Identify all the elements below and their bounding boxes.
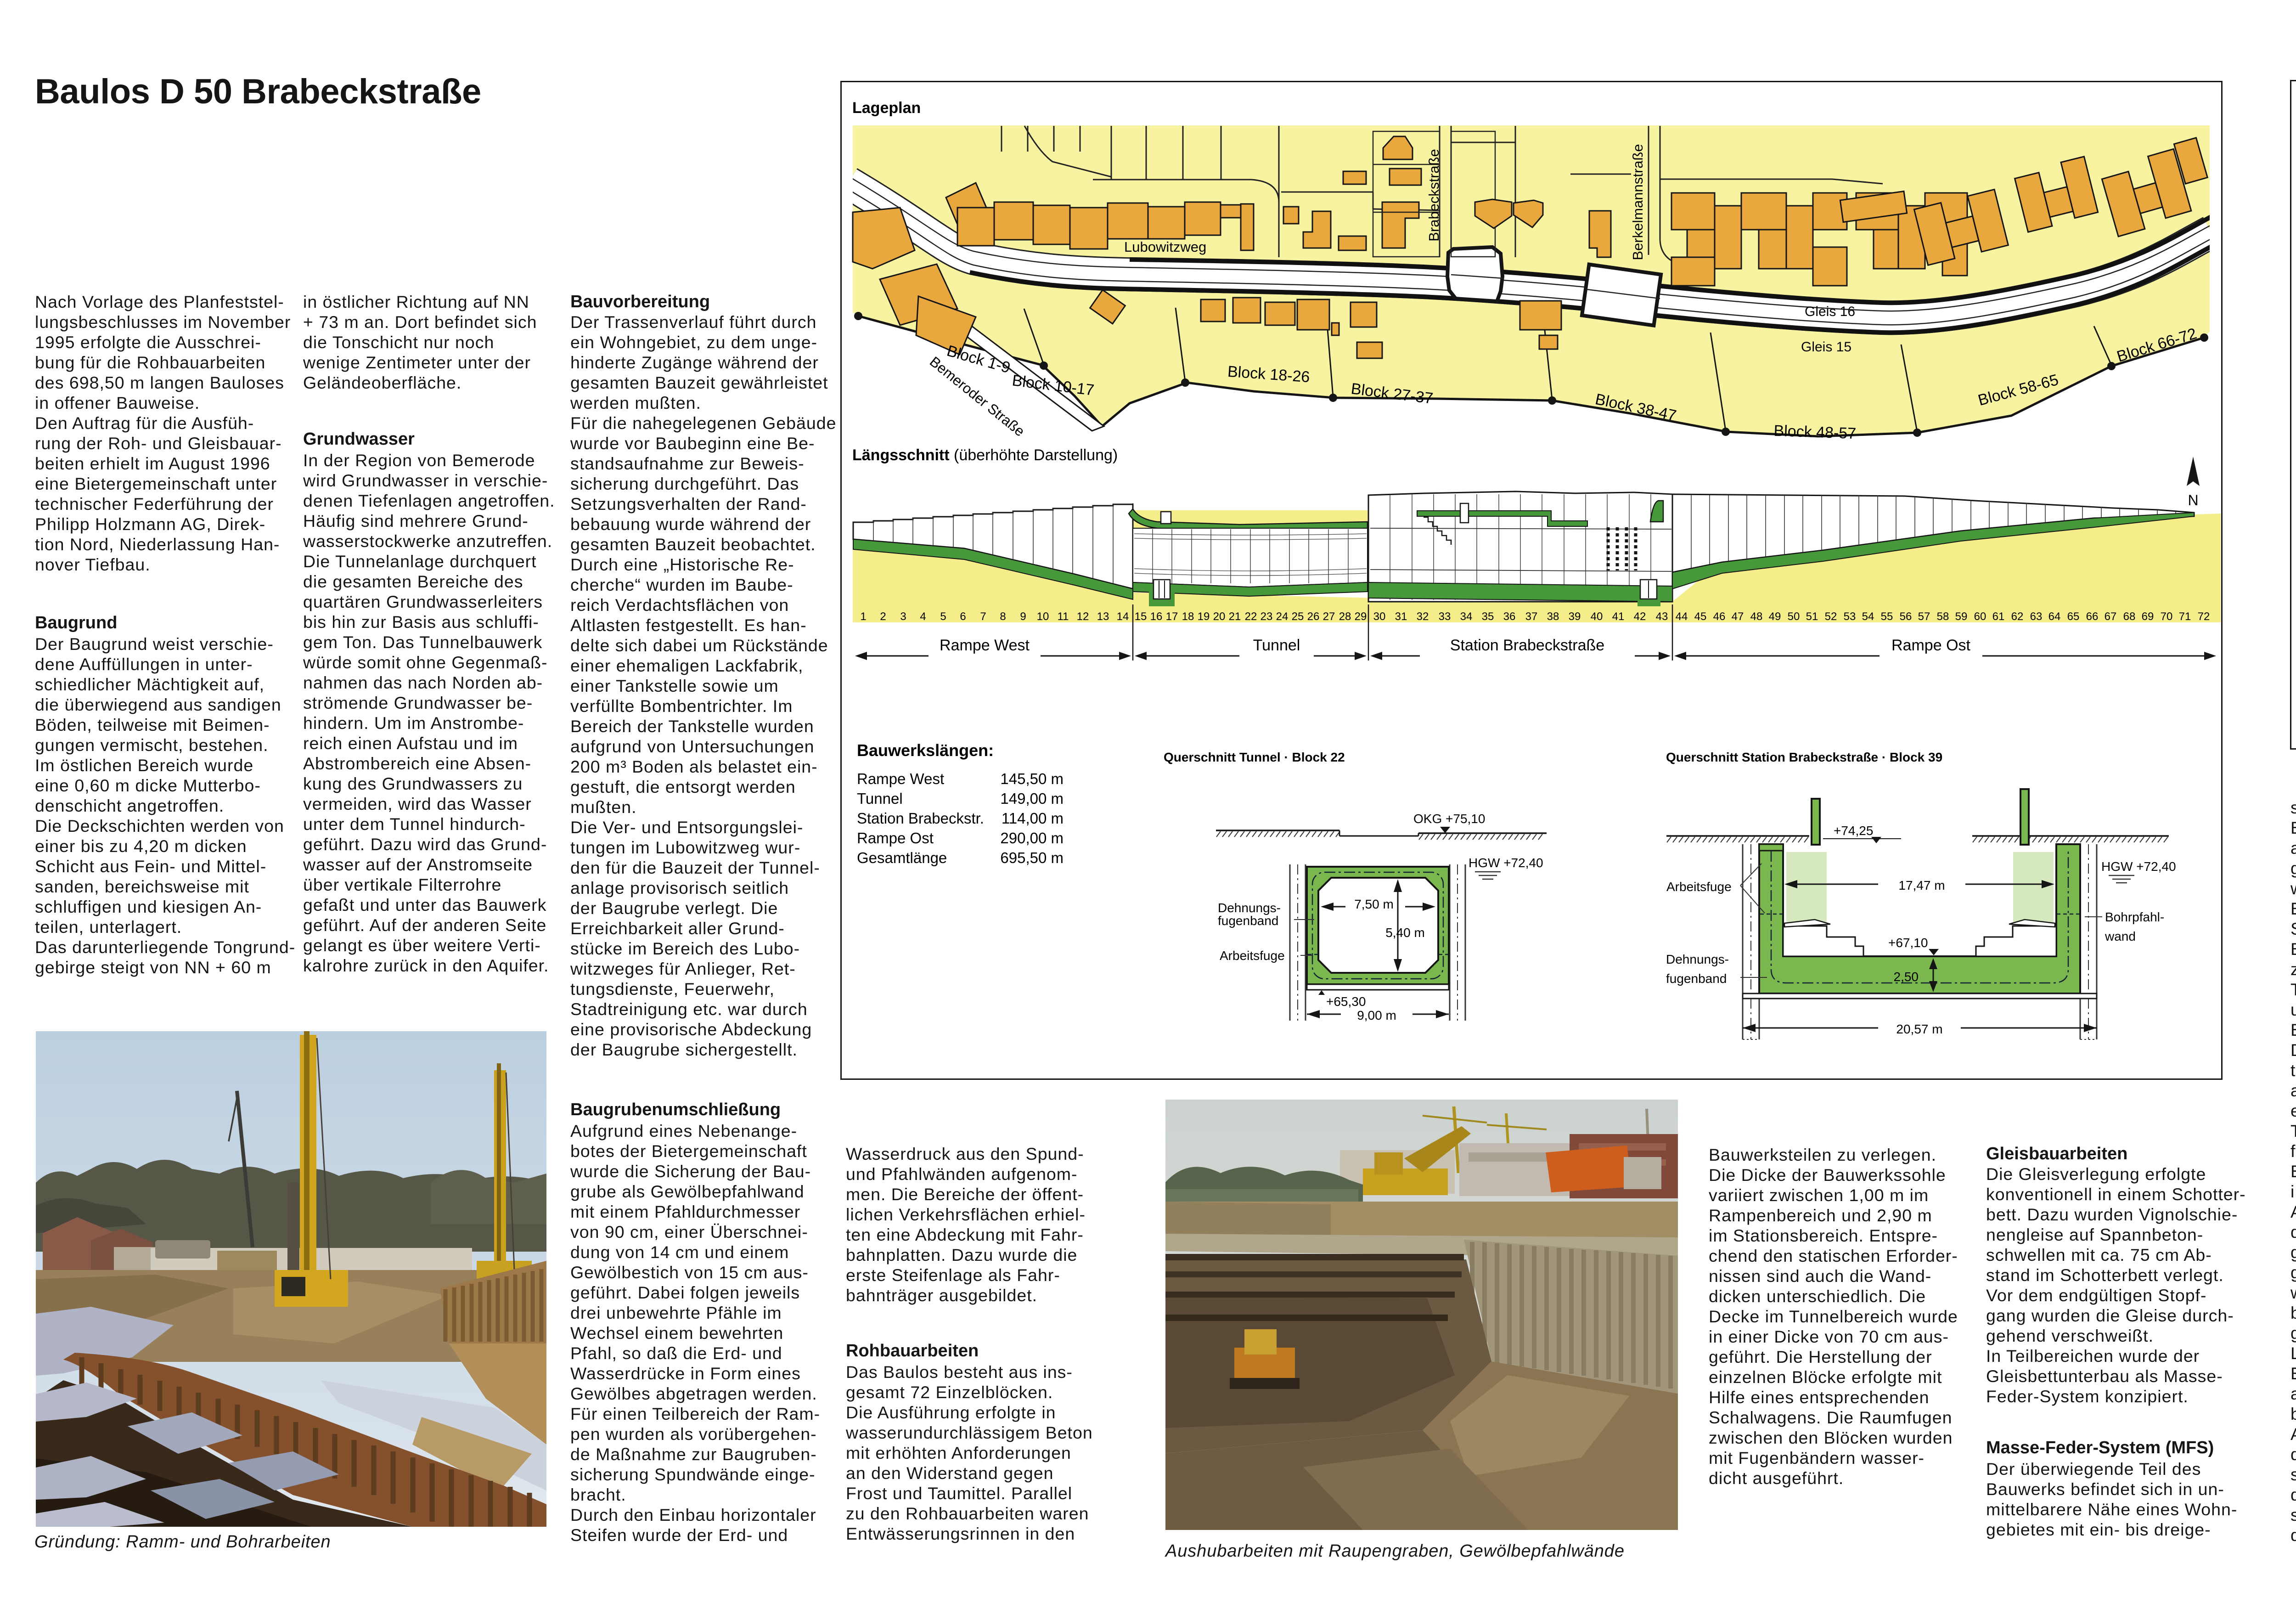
- svg-text:39: 39: [1569, 610, 1581, 623]
- svg-text:+67,10: +67,10: [1888, 936, 1928, 950]
- svg-text:67: 67: [2105, 610, 2117, 623]
- svg-text:72: 72: [2198, 610, 2210, 623]
- svg-text:64: 64: [2048, 610, 2061, 623]
- svg-text:66: 66: [2086, 610, 2099, 623]
- svg-text:Rampe West: Rampe West: [940, 637, 1030, 654]
- svg-text:Gleis 16: Gleis 16: [1805, 304, 1855, 319]
- svg-text:43: 43: [1656, 610, 1668, 623]
- svg-text:33: 33: [1439, 610, 1451, 623]
- svg-text:2: 2: [880, 610, 886, 623]
- svg-text:9,00 m: 9,00 m: [1357, 1008, 1396, 1022]
- svg-text:19: 19: [1198, 610, 1210, 623]
- svg-text:15: 15: [1135, 610, 1147, 623]
- svg-text:55: 55: [1881, 610, 1893, 623]
- svg-text:Station Brabeckstr.: Station Brabeckstr.: [857, 810, 984, 827]
- svg-text:Arbeitsfuge: Arbeitsfuge: [1220, 948, 1285, 963]
- svg-text:Lageplan: Lageplan: [852, 99, 921, 117]
- svg-text:fugenband: fugenband: [1666, 971, 1727, 986]
- svg-text:34: 34: [1460, 610, 1473, 623]
- svg-text:Querschnitt Tunnel · Block 22: Querschnitt Tunnel · Block 22: [1164, 750, 1345, 764]
- svg-text:Bohrpfahl-: Bohrpfahl-: [2105, 910, 2164, 924]
- svg-text:Lubowitzweg: Lubowitzweg: [1124, 239, 1206, 255]
- svg-text:+74,25: +74,25: [1834, 824, 1873, 838]
- svg-text:44: 44: [1676, 610, 1688, 623]
- svg-text:11: 11: [1058, 610, 1069, 623]
- svg-text:Gleis 15: Gleis 15: [1801, 339, 1851, 355]
- svg-text:59: 59: [1955, 610, 1968, 623]
- svg-text:695,50 m: 695,50 m: [1000, 849, 1064, 866]
- svg-text:24: 24: [1276, 610, 1289, 623]
- svg-text:50: 50: [1788, 610, 1800, 623]
- svg-text:Bauwerkslängen:: Bauwerkslängen:: [857, 741, 994, 760]
- svg-text:45: 45: [1694, 610, 1707, 623]
- svg-text:54: 54: [1862, 610, 1874, 623]
- svg-text:32: 32: [1417, 610, 1429, 623]
- svg-text:37: 37: [1525, 610, 1538, 623]
- svg-text:22: 22: [1245, 610, 1257, 623]
- svg-text:42: 42: [1634, 610, 1646, 623]
- svg-text:OKG +75,10: OKG +75,10: [1413, 812, 1485, 826]
- svg-text:1: 1: [860, 610, 866, 623]
- svg-text:61: 61: [1992, 610, 2005, 623]
- svg-text:69: 69: [2142, 610, 2154, 623]
- svg-text:21: 21: [1229, 610, 1241, 623]
- svg-text:Brabeckstraße: Brabeckstraße: [1426, 149, 1442, 242]
- svg-text:Dehnungs-: Dehnungs-: [1218, 901, 1281, 915]
- svg-text:5: 5: [940, 610, 946, 623]
- svg-text:40: 40: [1591, 610, 1603, 623]
- svg-text:Querschnitt Station Brabeckstr: Querschnitt Station Brabeckstraße · Bloc…: [1666, 750, 1942, 764]
- svg-text:20: 20: [1213, 610, 1226, 623]
- svg-text:Block 48-57: Block 48-57: [1773, 422, 1857, 442]
- svg-text:Arbeitsfuge: Arbeitsfuge: [1666, 880, 1732, 894]
- svg-text:Berkelmannstraße: Berkelmannstraße: [1630, 144, 1646, 260]
- svg-text:Längsschnitt (überhöhte Darste: Längsschnitt (überhöhte Darstellung): [852, 446, 1118, 464]
- svg-text:6: 6: [960, 610, 966, 623]
- svg-text:149,00 m: 149,00 m: [1000, 790, 1064, 807]
- svg-text:Rampe Ost: Rampe Ost: [1891, 637, 1970, 654]
- svg-text:17: 17: [1166, 610, 1178, 623]
- svg-text:30: 30: [1373, 610, 1386, 623]
- svg-text:13: 13: [1097, 610, 1109, 623]
- svg-text:+65,30: +65,30: [1326, 994, 1366, 1009]
- svg-text:56: 56: [1900, 610, 1912, 623]
- svg-text:18: 18: [1182, 610, 1194, 623]
- svg-text:52: 52: [1825, 610, 1837, 623]
- svg-text:35: 35: [1482, 610, 1494, 623]
- svg-text:N: N: [2188, 492, 2198, 508]
- svg-text:49: 49: [1769, 610, 1781, 623]
- svg-text:68: 68: [2123, 610, 2136, 623]
- svg-text:62: 62: [2011, 610, 2024, 623]
- svg-text:26: 26: [1307, 610, 1320, 623]
- svg-text:7,50 m: 7,50 m: [1354, 897, 1394, 911]
- svg-text:46: 46: [1713, 610, 1726, 623]
- svg-text:Station Brabeckstraße: Station Brabeckstraße: [1450, 637, 1604, 654]
- svg-text:70: 70: [2161, 610, 2173, 623]
- svg-text:Gesamtlänge: Gesamtlänge: [857, 849, 947, 866]
- svg-text:65: 65: [2067, 610, 2080, 623]
- svg-text:57: 57: [1918, 610, 1930, 623]
- svg-text:7: 7: [980, 610, 986, 623]
- svg-text:3: 3: [900, 610, 906, 623]
- svg-text:48: 48: [1750, 610, 1763, 623]
- svg-text:71: 71: [2179, 610, 2191, 623]
- svg-text:8: 8: [1000, 610, 1006, 623]
- svg-text:wand: wand: [2105, 929, 2136, 943]
- svg-text:HGW +72,40: HGW +72,40: [1469, 856, 1543, 870]
- svg-text:47: 47: [1732, 610, 1744, 623]
- svg-text:20,57 m: 20,57 m: [1896, 1022, 1942, 1036]
- svg-text:9: 9: [1020, 610, 1026, 623]
- svg-text:29: 29: [1355, 610, 1367, 623]
- svg-text:17,47 m: 17,47 m: [1898, 878, 1945, 892]
- svg-text:Tunnel: Tunnel: [1253, 637, 1300, 654]
- svg-text:41: 41: [1612, 610, 1625, 623]
- svg-text:5,40 m: 5,40 m: [1385, 926, 1425, 940]
- svg-text:27: 27: [1323, 610, 1335, 623]
- svg-text:25: 25: [1292, 610, 1304, 623]
- svg-text:Rampe West: Rampe West: [857, 770, 944, 787]
- svg-text:10: 10: [1037, 610, 1049, 623]
- svg-text:fugenband: fugenband: [1218, 914, 1278, 928]
- svg-text:Tunnel: Tunnel: [857, 790, 903, 807]
- svg-text:58: 58: [1937, 610, 1949, 623]
- svg-text:31: 31: [1395, 610, 1407, 623]
- svg-text:28: 28: [1339, 610, 1351, 623]
- svg-text:63: 63: [2030, 610, 2043, 623]
- svg-text:290,00 m: 290,00 m: [1000, 830, 1064, 847]
- svg-text:145,50 m: 145,50 m: [1000, 770, 1064, 787]
- svg-text:60: 60: [1974, 610, 1986, 623]
- svg-text:4: 4: [920, 610, 926, 623]
- svg-text:Dehnungs-: Dehnungs-: [1666, 952, 1729, 966]
- svg-text:14: 14: [1117, 610, 1129, 623]
- svg-text:Rampe Ost: Rampe Ost: [857, 830, 934, 847]
- svg-text:36: 36: [1503, 610, 1516, 623]
- svg-text:2,50: 2,50: [1894, 970, 1919, 984]
- svg-text:12: 12: [1077, 610, 1089, 623]
- svg-text:HGW +72,40: HGW +72,40: [2101, 859, 2176, 874]
- svg-text:16: 16: [1150, 610, 1163, 623]
- svg-text:53: 53: [1844, 610, 1856, 623]
- svg-text:38: 38: [1547, 610, 1559, 623]
- svg-text:51: 51: [1806, 610, 1818, 623]
- svg-text:114,00 m: 114,00 m: [1002, 810, 1064, 827]
- svg-text:23: 23: [1261, 610, 1273, 623]
